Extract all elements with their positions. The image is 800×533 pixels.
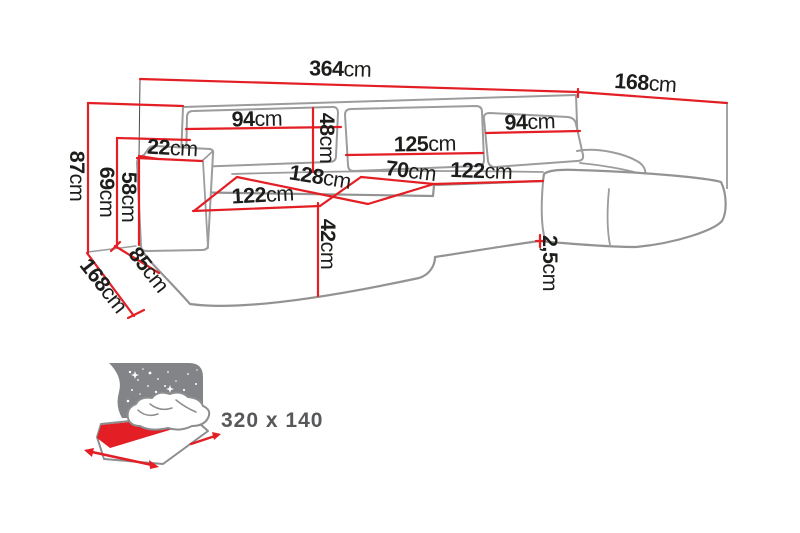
dim-label-back-middle: 125cm [394,131,456,156]
dim-label-height-total: 87cm [65,151,89,202]
sofa-outline [88,95,726,306]
dimension-diagram: 364cm 168cm 94cm 48cm 125cm 94cm 22cm 87… [0,0,800,533]
dim-label-depth-right: 168cm [614,69,678,97]
extension-left [139,79,140,157]
sleeping-area-label: 320 x 140 [221,409,323,432]
sofa-dimension-drawing: 364cm 168cm 94cm 48cm 125cm 94cm 22cm 87… [0,0,800,533]
dim-label-back-left: 94cm [231,107,282,132]
dim-label-total-width: 364cm [309,56,372,82]
dim-label-back-right: 94cm [504,109,555,135]
dim-label-seat-right: 122cm [450,158,513,184]
sofa-bed-icon: 320 x 140 [84,363,323,469]
dim-label-bottom-gap: 2,5cm [538,235,562,291]
dim-label-height-armrest: 58cm [117,172,141,223]
sofa-body-outline [142,170,726,306]
dim-label-seat-middle: 70cm [384,156,437,186]
dim-label-armrest-width: 22cm [146,135,198,162]
dim-label-seat-height: 42cm [316,219,340,270]
dim-label-height-back: 69cm [95,167,119,218]
dim-label-depth-left: 168cm [75,254,132,318]
dim-label-seat-left: 122cm [231,181,294,208]
dim-label-back-height: 48cm [315,113,339,164]
dim-tick-armrest-depth-start [111,242,120,251]
dim-tick-height-total-top [88,103,183,106]
